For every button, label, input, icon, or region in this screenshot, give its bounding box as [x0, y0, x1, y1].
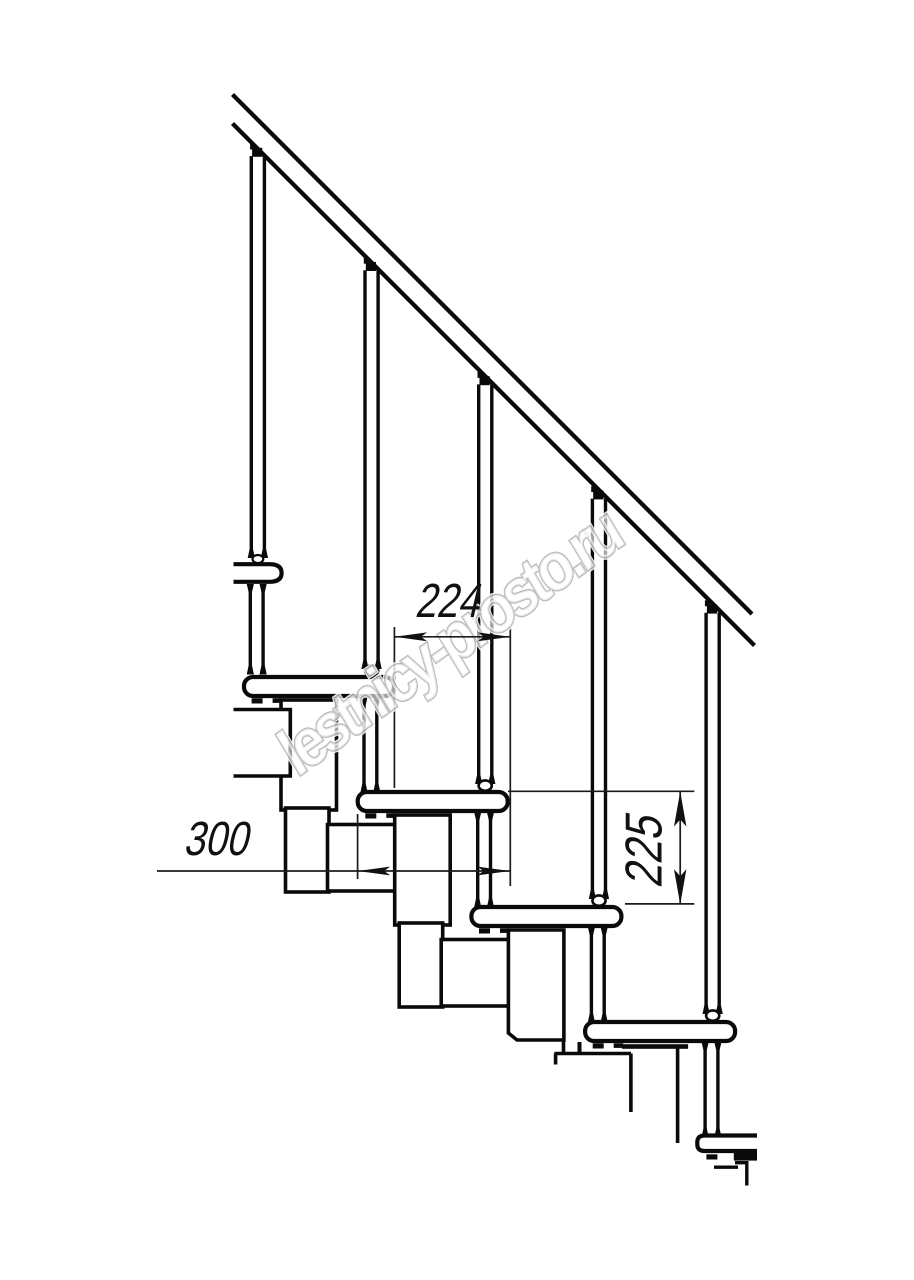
svg-text:224: 224	[412, 575, 488, 628]
svg-text:300: 300	[180, 813, 256, 866]
svg-text:225: 225	[616, 807, 674, 892]
